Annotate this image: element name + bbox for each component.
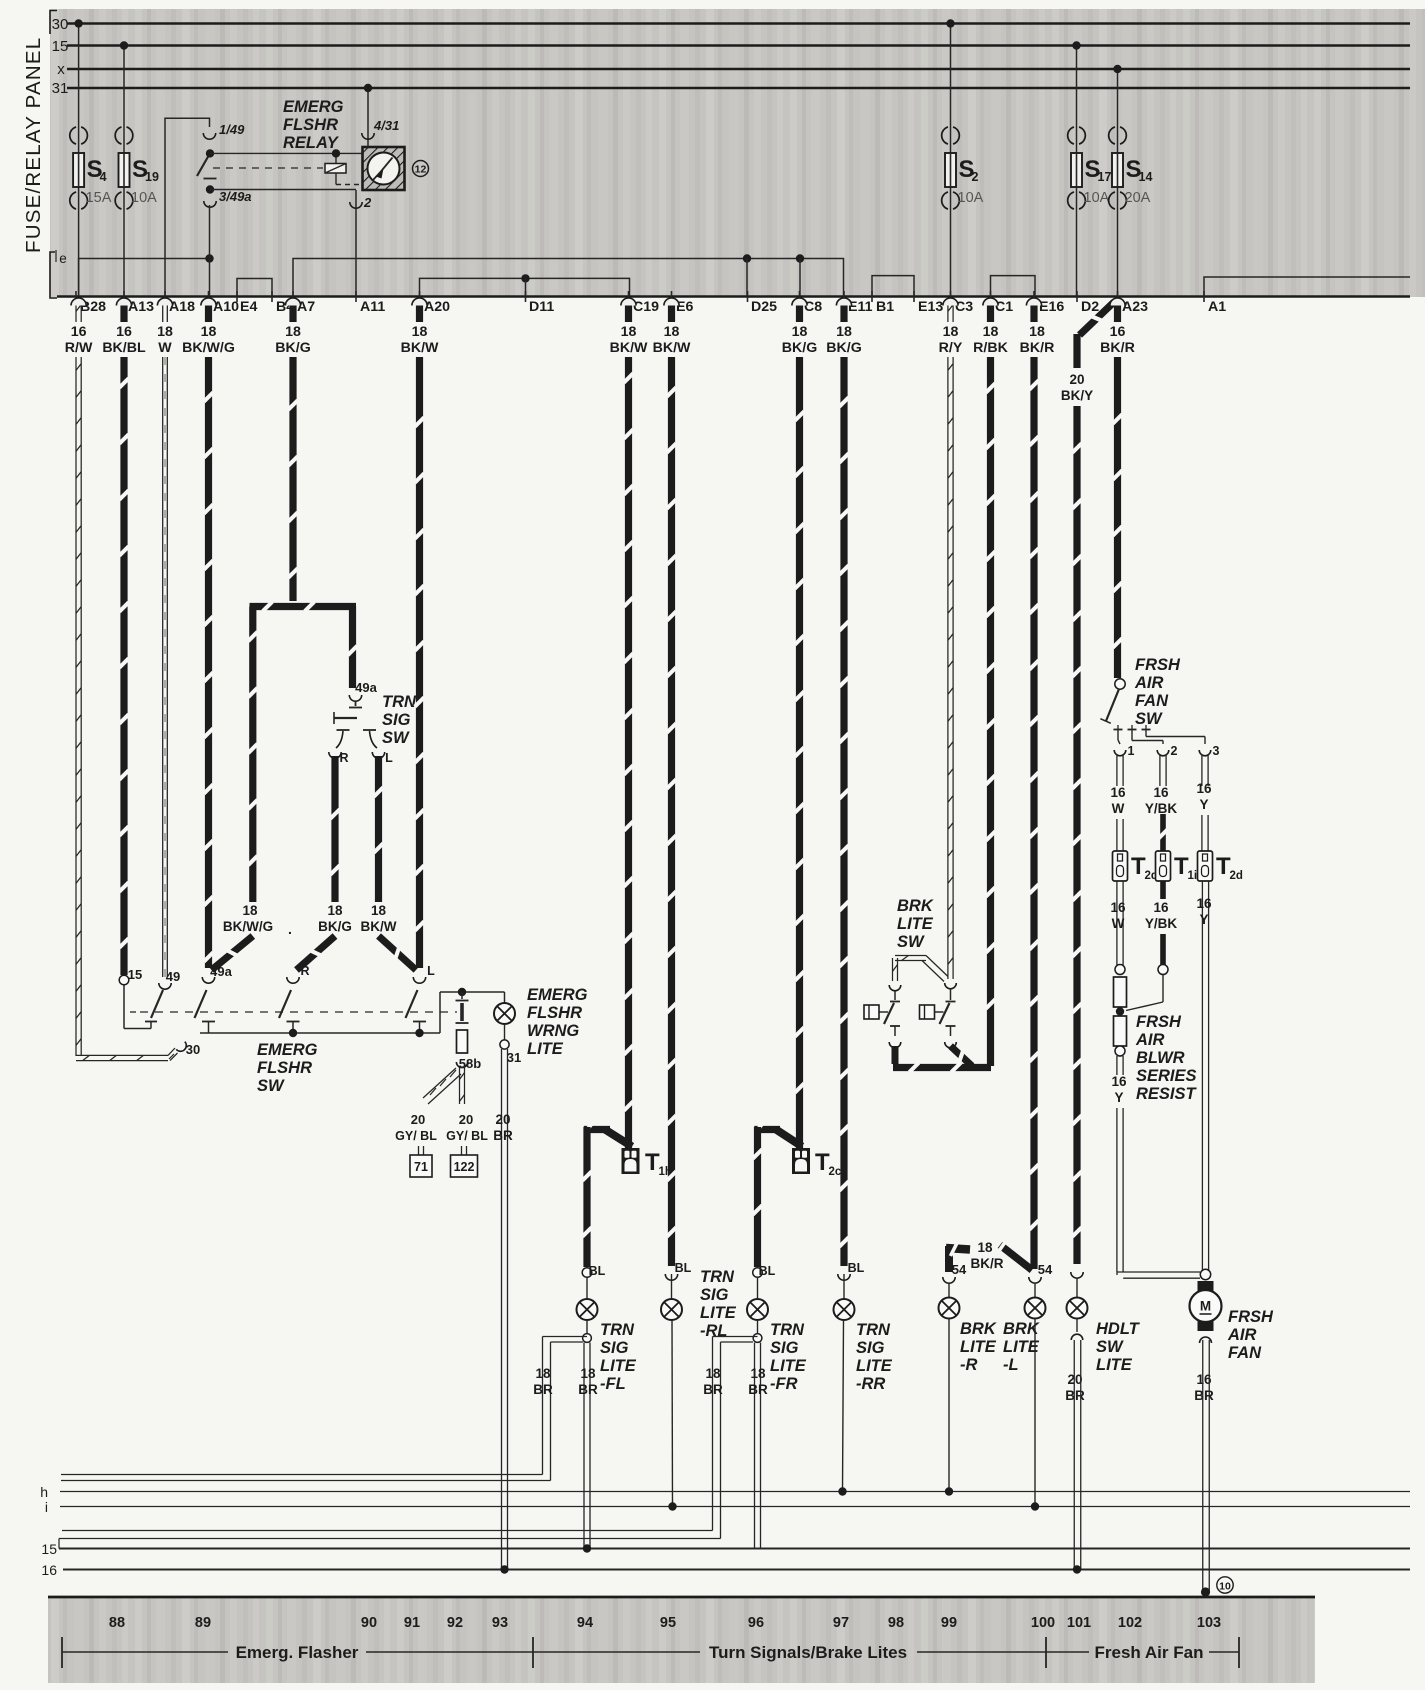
- svg-text:TRN: TRN: [770, 1321, 805, 1339]
- svg-text:18: 18: [664, 324, 680, 340]
- svg-text:W: W: [1112, 801, 1125, 816]
- svg-text:B1: B1: [876, 299, 894, 315]
- svg-text:A23: A23: [1122, 299, 1148, 315]
- svg-text:BK/Y: BK/Y: [1061, 388, 1093, 403]
- svg-text:Y: Y: [1114, 1090, 1123, 1105]
- svg-text:10: 10: [1219, 1581, 1231, 1593]
- svg-text:SIG: SIG: [600, 1339, 629, 1357]
- svg-text:-FR: -FR: [770, 1375, 798, 1393]
- svg-text:SIG: SIG: [700, 1286, 729, 1304]
- svg-text:BR: BR: [1194, 1388, 1214, 1403]
- svg-text:1i: 1i: [1188, 870, 1198, 882]
- svg-text:x: x: [57, 61, 65, 78]
- svg-text:Y: Y: [1199, 797, 1208, 812]
- svg-text:h: h: [40, 1484, 48, 1500]
- svg-text:FLSHR: FLSHR: [527, 1004, 582, 1022]
- svg-text:GY/ BL: GY/ BL: [446, 1129, 488, 1143]
- svg-text:15A: 15A: [86, 190, 112, 206]
- svg-text:FAN: FAN: [1228, 1344, 1262, 1362]
- svg-text:BK/R: BK/R: [1020, 340, 1055, 356]
- svg-text:18: 18: [621, 324, 637, 340]
- svg-text:.: .: [288, 921, 292, 937]
- svg-text:122: 122: [454, 1160, 475, 1174]
- svg-text:96: 96: [748, 1615, 764, 1631]
- svg-text:4: 4: [100, 170, 107, 184]
- svg-text:18: 18: [983, 324, 999, 340]
- svg-text:18: 18: [977, 1240, 993, 1255]
- svg-text:BL: BL: [675, 1261, 692, 1275]
- svg-text:L: L: [427, 964, 435, 978]
- svg-text:30: 30: [186, 1042, 200, 1057]
- svg-text:BRK: BRK: [897, 897, 934, 915]
- svg-text:SIG: SIG: [770, 1339, 799, 1357]
- svg-text:99: 99: [941, 1615, 957, 1631]
- svg-text:18: 18: [535, 1366, 551, 1381]
- svg-text:2c: 2c: [829, 1166, 842, 1178]
- svg-text:2: 2: [363, 195, 372, 210]
- svg-text:LITE: LITE: [770, 1357, 807, 1375]
- svg-text:BK/W: BK/W: [401, 340, 439, 356]
- svg-text:RESIST: RESIST: [1136, 1085, 1198, 1103]
- svg-text:93: 93: [492, 1615, 508, 1631]
- svg-text:D25: D25: [751, 299, 777, 315]
- svg-text:SERIES: SERIES: [1136, 1067, 1197, 1085]
- svg-text:97: 97: [833, 1615, 849, 1631]
- svg-text:18: 18: [412, 324, 428, 340]
- svg-text:-L: -L: [1003, 1356, 1019, 1374]
- svg-text:16: 16: [1110, 785, 1126, 800]
- svg-text:W: W: [1112, 916, 1125, 931]
- svg-text:15: 15: [52, 38, 69, 55]
- svg-text:FRSH: FRSH: [1135, 656, 1181, 674]
- svg-text:103: 103: [1197, 1615, 1221, 1631]
- svg-text:BK/R: BK/R: [971, 1256, 1004, 1271]
- svg-text:BRK: BRK: [960, 1320, 997, 1338]
- svg-text:54: 54: [952, 1262, 967, 1277]
- svg-text:18: 18: [157, 324, 173, 340]
- svg-text:2: 2: [972, 170, 979, 184]
- svg-text:-RR: -RR: [856, 1375, 885, 1393]
- svg-text:LITE: LITE: [527, 1040, 564, 1058]
- svg-text:18: 18: [750, 1366, 766, 1381]
- svg-text:FRSH: FRSH: [1136, 1013, 1182, 1031]
- svg-text:95: 95: [660, 1615, 676, 1631]
- svg-text:E16: E16: [1039, 299, 1064, 315]
- svg-text:LITE: LITE: [1003, 1338, 1040, 1356]
- svg-text:16: 16: [116, 324, 132, 340]
- svg-text:4/31: 4/31: [373, 118, 399, 133]
- svg-text:D11: D11: [529, 299, 554, 315]
- svg-text:W: W: [158, 340, 172, 356]
- svg-text:BK/G: BK/G: [782, 340, 817, 356]
- svg-text:M: M: [1200, 1299, 1211, 1314]
- svg-text:18: 18: [836, 324, 852, 340]
- svg-text:14: 14: [1139, 170, 1153, 184]
- svg-text:BR: BR: [493, 1128, 513, 1143]
- svg-text:R: R: [339, 751, 348, 765]
- svg-text:AIR: AIR: [1227, 1326, 1257, 1344]
- svg-text:BR: BR: [533, 1382, 553, 1397]
- svg-text:92: 92: [447, 1615, 463, 1631]
- svg-text:Y: Y: [1199, 912, 1208, 927]
- svg-text:100: 100: [1031, 1615, 1055, 1631]
- svg-text:AIR: AIR: [1134, 674, 1164, 692]
- svg-text:A20: A20: [424, 299, 450, 315]
- svg-text:BK/W: BK/W: [361, 919, 397, 934]
- svg-text:-FL: -FL: [600, 1375, 626, 1393]
- svg-text:TRN: TRN: [600, 1321, 635, 1339]
- svg-text:SW: SW: [382, 729, 410, 747]
- svg-text:D2: D2: [1081, 299, 1099, 315]
- svg-text:FLSHR: FLSHR: [257, 1059, 312, 1077]
- svg-text:16: 16: [1196, 781, 1212, 796]
- svg-text:FLSHR: FLSHR: [283, 116, 338, 134]
- svg-text:i: i: [45, 1499, 48, 1515]
- svg-text:Y/BK: Y/BK: [1145, 916, 1178, 931]
- svg-text:16: 16: [1153, 785, 1169, 800]
- svg-text:BK/W/G: BK/W/G: [182, 340, 235, 356]
- svg-text:1/49: 1/49: [219, 122, 245, 137]
- svg-text:16: 16: [1111, 1074, 1127, 1089]
- svg-text:GY/ BL: GY/ BL: [395, 1129, 437, 1143]
- svg-text:SW: SW: [897, 933, 925, 951]
- svg-text:BK/R: BK/R: [1100, 340, 1135, 356]
- svg-text:e: e: [59, 251, 67, 266]
- svg-text:TRN: TRN: [700, 1268, 735, 1286]
- svg-text:3/49a: 3/49a: [219, 189, 252, 204]
- svg-text:R: R: [300, 964, 309, 978]
- svg-text:88: 88: [109, 1615, 125, 1631]
- svg-text:10A: 10A: [958, 190, 984, 206]
- svg-text:E11: E11: [848, 299, 873, 315]
- svg-text:Y/BK: Y/BK: [1145, 801, 1178, 816]
- svg-text:HDLT: HDLT: [1096, 1320, 1141, 1338]
- svg-text:-R: -R: [960, 1356, 977, 1374]
- svg-text:R/BK: R/BK: [973, 340, 1008, 356]
- svg-text:16: 16: [71, 324, 87, 340]
- svg-text:TRN: TRN: [382, 693, 417, 711]
- svg-text:3: 3: [1213, 744, 1220, 758]
- svg-text:16: 16: [41, 1562, 57, 1578]
- svg-text:2: 2: [1171, 744, 1178, 758]
- svg-text:20: 20: [1069, 372, 1084, 387]
- svg-text:-RL: -RL: [700, 1322, 728, 1340]
- svg-text:18: 18: [943, 324, 959, 340]
- svg-text:18: 18: [327, 903, 343, 918]
- svg-text:18: 18: [705, 1366, 721, 1381]
- svg-text:LITE: LITE: [700, 1304, 737, 1322]
- svg-text:BR: BR: [578, 1382, 598, 1397]
- svg-text:FRSH: FRSH: [1228, 1308, 1274, 1326]
- svg-text:16: 16: [1110, 324, 1126, 340]
- svg-text:58b: 58b: [459, 1056, 481, 1071]
- svg-text:71: 71: [414, 1160, 428, 1174]
- svg-text:BL: BL: [848, 1261, 865, 1275]
- svg-text:SW: SW: [1135, 710, 1163, 728]
- svg-text:101: 101: [1067, 1615, 1091, 1631]
- svg-text:BL: BL: [589, 1264, 606, 1278]
- svg-text:BLWR: BLWR: [1136, 1049, 1185, 1067]
- svg-text:18: 18: [285, 324, 301, 340]
- svg-text:12: 12: [415, 164, 427, 176]
- svg-text:EMERG: EMERG: [283, 98, 344, 116]
- svg-text:17: 17: [1098, 170, 1112, 184]
- svg-text:20: 20: [411, 1112, 425, 1127]
- svg-text:18: 18: [371, 903, 387, 918]
- svg-text:18: 18: [242, 903, 258, 918]
- svg-text:L: L: [385, 751, 393, 765]
- svg-text:R/Y: R/Y: [939, 340, 963, 356]
- svg-text:2d: 2d: [1230, 870, 1243, 882]
- svg-text:1: 1: [1128, 744, 1135, 758]
- svg-text:SIG: SIG: [382, 711, 411, 729]
- svg-text:LITE: LITE: [1096, 1356, 1133, 1374]
- svg-text:BK/BL: BK/BL: [102, 340, 146, 356]
- svg-text:49a: 49a: [355, 680, 377, 695]
- svg-text:20: 20: [495, 1112, 510, 1127]
- svg-text:E13: E13: [918, 299, 943, 315]
- svg-text:18: 18: [792, 324, 808, 340]
- svg-text:E4: E4: [240, 299, 257, 315]
- svg-text:Fresh Air Fan: Fresh Air Fan: [1095, 1643, 1204, 1662]
- svg-text:A1: A1: [1208, 299, 1226, 315]
- svg-text:16: 16: [1110, 900, 1126, 915]
- svg-text:10A: 10A: [1084, 190, 1110, 206]
- svg-text:R/W: R/W: [65, 340, 93, 356]
- svg-text:FAN: FAN: [1135, 692, 1169, 710]
- svg-text:LITE: LITE: [960, 1338, 997, 1356]
- svg-text:AIR: AIR: [1135, 1031, 1165, 1049]
- svg-text:BK/W/G: BK/W/G: [223, 919, 273, 934]
- svg-text:Turn Signals/Brake Lites: Turn Signals/Brake Lites: [709, 1643, 907, 1662]
- svg-text:RELAY: RELAY: [283, 134, 340, 152]
- svg-text:18: 18: [580, 1366, 596, 1381]
- svg-text:BK/W: BK/W: [610, 340, 648, 356]
- svg-text:94: 94: [577, 1615, 593, 1631]
- svg-text:SW: SW: [1096, 1338, 1124, 1356]
- svg-text:LITE: LITE: [897, 915, 934, 933]
- svg-text:16: 16: [1153, 900, 1169, 915]
- svg-text:BL: BL: [759, 1264, 776, 1278]
- svg-text:A11: A11: [360, 299, 385, 315]
- svg-text:18: 18: [1029, 324, 1045, 340]
- svg-text:TRN: TRN: [856, 1321, 891, 1339]
- svg-text:LITE: LITE: [600, 1357, 637, 1375]
- svg-text:BK/G: BK/G: [826, 340, 861, 356]
- svg-text:30: 30: [52, 16, 69, 33]
- svg-text:54: 54: [1038, 1262, 1053, 1277]
- svg-text:A10: A10: [213, 299, 239, 315]
- svg-text:15: 15: [41, 1541, 57, 1557]
- svg-text:89: 89: [195, 1615, 211, 1631]
- svg-text:Emerg. Flasher: Emerg. Flasher: [236, 1643, 359, 1662]
- svg-text:98: 98: [888, 1615, 904, 1631]
- svg-text:BR: BR: [748, 1382, 768, 1397]
- svg-text:BK/W: BK/W: [653, 340, 691, 356]
- svg-text:EMERG: EMERG: [527, 986, 588, 1004]
- svg-text:49: 49: [166, 969, 180, 984]
- svg-text:15: 15: [128, 967, 142, 982]
- svg-text:A18: A18: [169, 299, 195, 315]
- svg-text:BK/G: BK/G: [275, 340, 310, 356]
- svg-text:WRNG: WRNG: [527, 1022, 579, 1040]
- svg-text:LITE: LITE: [856, 1357, 893, 1375]
- svg-text:16: 16: [1196, 896, 1212, 911]
- svg-text:91: 91: [404, 1615, 420, 1631]
- svg-text:10A: 10A: [131, 190, 157, 206]
- svg-text:19: 19: [145, 170, 159, 184]
- svg-text:BR: BR: [1065, 1388, 1085, 1403]
- svg-text:18: 18: [201, 324, 217, 340]
- svg-text:90: 90: [361, 1615, 377, 1631]
- svg-text:20A: 20A: [1125, 190, 1151, 206]
- svg-text:A13: A13: [128, 299, 154, 315]
- svg-text:BR: BR: [703, 1382, 723, 1397]
- svg-text:SW: SW: [257, 1077, 285, 1095]
- svg-text:FUSE/RELAY PANEL: FUSE/RELAY PANEL: [22, 37, 45, 253]
- svg-text:EMERG: EMERG: [257, 1041, 318, 1059]
- svg-text:102: 102: [1118, 1615, 1142, 1631]
- svg-text:31: 31: [52, 80, 69, 97]
- svg-text:SIG: SIG: [856, 1339, 885, 1357]
- svg-text:C19: C19: [633, 299, 659, 315]
- svg-text:31: 31: [507, 1050, 521, 1065]
- svg-text:BK/G: BK/G: [318, 919, 352, 934]
- svg-text:20: 20: [459, 1112, 473, 1127]
